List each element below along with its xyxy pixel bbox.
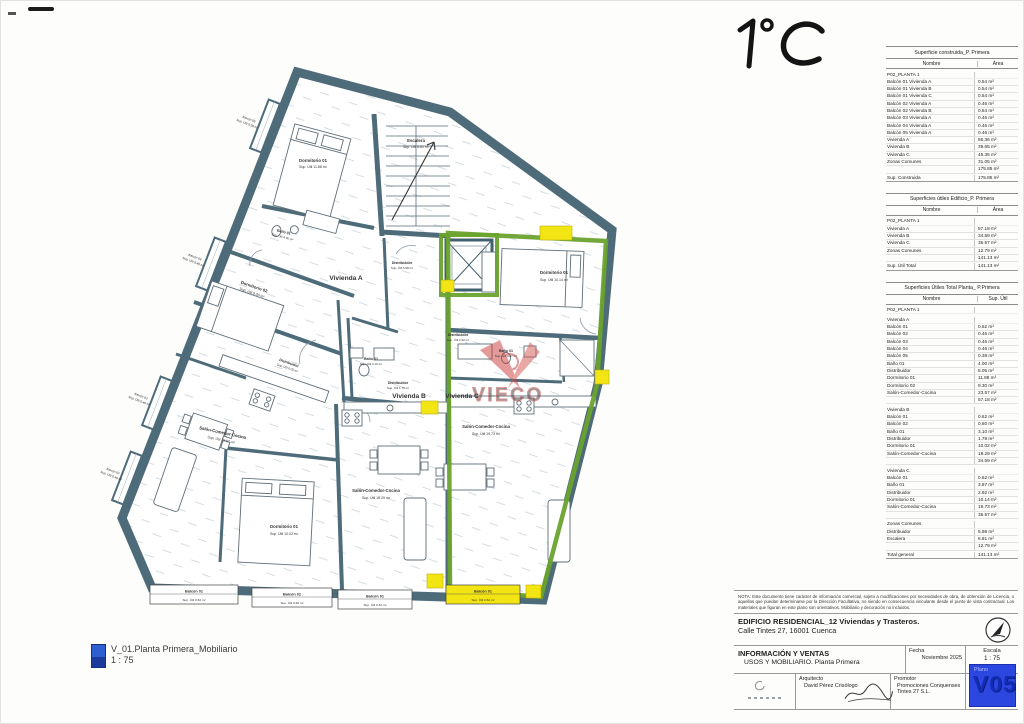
- row-name: Balcón 01: [886, 475, 974, 481]
- row-value: [974, 307, 1018, 313]
- table-row: Baño 01 4.00 m²: [886, 361, 1018, 368]
- table-rows: P02_PLANTA 1 Vivienda A 57.18 m² Viviend…: [886, 218, 1018, 270]
- table-row: P02_PLANTA 1: [886, 307, 1018, 314]
- row-value: 0.62 m²: [974, 324, 1018, 330]
- row-name: Dormitorio 01: [886, 443, 974, 449]
- table-row: Balcón 02 0.46 m²: [886, 331, 1018, 338]
- fecha-value: Noviembre 2025: [909, 655, 962, 662]
- scan-artifact: [8, 12, 16, 15]
- table-row: Vivienda B: [886, 407, 1018, 414]
- table-row: Balcón 01 0.62 m²: [886, 324, 1018, 331]
- sofa-icon: [404, 498, 426, 560]
- compass-logo-icon: [984, 616, 1012, 644]
- sink-icon: [552, 399, 558, 405]
- row-name: P02_PLANTA 1: [886, 218, 974, 224]
- escala-value: 1 : 75: [969, 655, 1015, 662]
- table-row: Vivienda A: [886, 317, 1018, 324]
- row-name: Balcón 01 Vivienda A: [886, 79, 974, 85]
- row-value: 0.62 m²: [974, 475, 1018, 481]
- row-value: [974, 218, 1018, 224]
- row-name: Sup. Útil Total: [886, 263, 974, 269]
- handwritten-annotation: [722, 14, 842, 76]
- row-name: Balcón 02 Vivienda A: [886, 101, 974, 107]
- row-value: 0.46 m²: [974, 331, 1018, 337]
- row-name: Vivienda A: [886, 226, 974, 232]
- row-value: 34.59 m²: [974, 458, 1018, 464]
- table-row: Balcón 01 Vivienda C 0.54 m²: [886, 93, 1018, 100]
- row-value: 57.18 m²: [974, 397, 1018, 403]
- plano-number: V05: [973, 673, 1015, 695]
- room-area: Sup. Útil 19.73 m²: [472, 432, 501, 436]
- row-name: [886, 512, 974, 518]
- vivienda-c-label: Vivienda C: [445, 393, 479, 400]
- row-name: Balcón 02 Vivienda B: [886, 108, 974, 114]
- row-name: Total general: [886, 552, 974, 558]
- row-value: 34.59 m²: [974, 233, 1018, 239]
- project-address: Calle Tintes 27, 16001 Cuenca: [738, 626, 1018, 635]
- table-row: Sup. Construida 175.85 m²: [886, 175, 1018, 181]
- table-title: Superficies útiles Edificio_P. Primera: [886, 193, 1018, 206]
- balcony-area: Sup. Útil 0.62 m²: [471, 598, 494, 602]
- table-row: Zonas Comunes: [886, 521, 1018, 528]
- legend-title: V_01.Planta Primera_Mobiliario: [111, 644, 238, 655]
- table-row: Vivienda C 45.35 m²: [886, 152, 1018, 159]
- document-title: INFORMACIÓN Y VENTAS: [738, 649, 905, 658]
- row-value: 57.18 m²: [974, 226, 1018, 232]
- row-value: 18.29 m²: [974, 451, 1018, 457]
- table-title: Superficies Útiles Total Planta_ P.Prime…: [886, 282, 1018, 295]
- row-name: Distribuidor: [886, 529, 974, 535]
- column-header: Nombre: [886, 61, 977, 67]
- row-name: Dormitorio 01: [886, 497, 974, 503]
- row-value: [974, 317, 1018, 323]
- row-value: 56.36 m²: [974, 137, 1018, 143]
- row-value: 0.46 m²: [974, 115, 1018, 121]
- table-row: Dormitorio 01 11.88 m²: [886, 375, 1018, 382]
- table-row: Dormitorio 01 10.14 m²: [886, 497, 1018, 504]
- table-header: Nombre Sup. Útil: [886, 295, 1018, 305]
- row-value: 0.46 m²: [974, 130, 1018, 136]
- row-value: 5.98 m²: [974, 529, 1018, 535]
- table-row: Balcón 01 Vivienda B 0.54 m²: [886, 86, 1018, 93]
- table-header: Nombre Área: [886, 206, 1018, 216]
- room-area: Sup. Útil 11.88 m²: [299, 165, 328, 169]
- balcony-label: Balcón 01: [366, 595, 384, 599]
- table-row: Zonas Comunes 12.79 m²: [886, 248, 1018, 255]
- row-name: Balcón 02: [886, 331, 974, 337]
- promotor-name: Promociones Conquenses Tintes 27 S.L.: [894, 683, 962, 696]
- sink-icon: [387, 405, 393, 411]
- table-row: Balcón 03 0.46 m²: [886, 339, 1018, 346]
- row-value: 0.46 m²: [974, 346, 1018, 352]
- table-row: Zonas Comunes 31.05 m²: [886, 159, 1018, 166]
- row-value: 45.35 m²: [974, 152, 1018, 158]
- table-superficie-construida: Superficie construida_P. Primera Nombre …: [886, 46, 1018, 182]
- table-row: Vivienda B 39.65 m²: [886, 144, 1018, 151]
- studio-logo-cell: [734, 674, 795, 709]
- row-name: Distribuidor: [886, 436, 974, 442]
- floor-plan: VIECO Dormitorio 01 Sup. Útil 11.88 m² E…: [85, 55, 630, 625]
- table-row: Balcón 02 0.60 m²: [886, 421, 1018, 428]
- row-name: Zonas Comunes: [886, 248, 974, 254]
- room-area: Sup. Útil 5.98 m²: [391, 265, 413, 270]
- room-label: Dormitorio 01: [299, 158, 328, 163]
- room-label: Escalera: [407, 138, 425, 143]
- row-name: Salón-Comedor-Cocina: [886, 504, 974, 510]
- dining-table-icon: [436, 464, 494, 490]
- table-row: Sup. Útil Total 141.13 m²: [886, 263, 1018, 269]
- row-value: 10.02 m²: [974, 443, 1018, 449]
- title-block: NOTA: Este documento tiene carácter de i…: [734, 590, 1018, 710]
- scanned-plan-sheet: VIECO Dormitorio 01 Sup. Útil 11.88 m² E…: [0, 0, 1024, 724]
- plano-cell: Plano V05: [965, 674, 1018, 709]
- room-area: Sup. Útil 3.10 m²: [360, 361, 382, 366]
- balcony-area: Sup. Útil 0.62 m²: [182, 598, 205, 602]
- table-row: 36.57 m²: [886, 512, 1018, 519]
- plano-number-box: Plano V05: [969, 664, 1016, 707]
- row-name: Vivienda B: [886, 407, 974, 413]
- table-rows: P02_PLANTA 1 Vivienda A Balcón 01 0.62 m…: [886, 307, 1018, 559]
- row-name: Balcón 05: [886, 353, 974, 359]
- row-value: 0.60 m²: [974, 421, 1018, 427]
- table-row: Vivienda A 57.18 m²: [886, 226, 1018, 233]
- row-name: Salón-Comedor-Cocina: [886, 390, 974, 396]
- fecha-label: Fecha: [909, 648, 962, 654]
- room-label: Baño 01: [499, 349, 513, 353]
- area-tables-panel: Superficie construida_P. Primera Nombre …: [886, 46, 1018, 570]
- table-row: Balcón 01 0.62 m²: [886, 414, 1018, 421]
- row-value: 0.46 m²: [974, 123, 1018, 129]
- row-value: [974, 521, 1018, 527]
- table-row: Balcón 01 Vivienda A 0.54 m²: [886, 79, 1018, 86]
- row-value: 2.92 m²: [974, 490, 1018, 496]
- row-name: Balcón 03: [886, 339, 974, 345]
- table-row: 34.59 m²: [886, 458, 1018, 465]
- row-name: Balcón 04 Vivienda A: [886, 123, 974, 129]
- row-value: 9.30 m²: [974, 383, 1018, 389]
- room-label: Dormitorio 01: [270, 524, 299, 529]
- handwriting-1c-icon: [722, 14, 842, 76]
- room-label: Salón-Comedor-Cocina: [352, 488, 400, 493]
- document-subtitle: USOS Y MOBILIARIO. Planta Primera: [738, 658, 905, 667]
- signature-row: Arquitecto David Pérez Crisólogo Promoto…: [734, 674, 1018, 710]
- row-value: 10.14 m²: [974, 497, 1018, 503]
- room-label: Distribuidor: [448, 333, 469, 337]
- row-name: P02_PLANTA 1: [886, 72, 974, 78]
- column-header: Área: [977, 61, 1018, 67]
- row-value: 0.62 m²: [974, 414, 1018, 420]
- balcony-label: Balcón 01: [474, 590, 492, 594]
- row-value: 19.73 m²: [974, 504, 1018, 510]
- dining-table-icon: [370, 446, 428, 474]
- legend-color-swatch: [91, 644, 106, 668]
- legend-text: V_01.Planta Primera_Mobiliario 1 : 75: [111, 644, 238, 668]
- balcony-label: Balcón 01: [185, 590, 203, 594]
- vivienda-b-label: Vivienda B: [392, 393, 426, 400]
- table-row: Distribuidor 6.05 m²: [886, 368, 1018, 375]
- legend-scale: 1 : 75: [111, 655, 238, 666]
- scan-artifact: [28, 7, 54, 11]
- row-name: Vivienda A: [886, 317, 974, 323]
- document-title-cell: INFORMACIÓN Y VENTAS USOS Y MOBILIARIO. …: [734, 646, 905, 673]
- table-row: Balcón 03 Vivienda A 0.46 m²: [886, 115, 1018, 122]
- row-value: 0.46 m²: [974, 339, 1018, 345]
- row-value: 141.13 m²: [974, 263, 1018, 269]
- row-name: Dormitorio 02: [886, 383, 974, 389]
- row-value: 0.54 m²: [974, 93, 1018, 99]
- row-value: 11.88 m²: [974, 375, 1018, 381]
- row-name: Vivienda B: [886, 233, 974, 239]
- row-name: Balcón 01 Vivienda B: [886, 86, 974, 92]
- row-value: [974, 468, 1018, 474]
- room-area: Sup. Útil 6.81 m²: [403, 145, 430, 149]
- row-name: Zonas Comunes: [886, 159, 974, 165]
- row-name: Balcón 01: [886, 414, 974, 420]
- row-value: 39.65 m²: [974, 144, 1018, 150]
- row-name: P02_PLANTA 1: [886, 307, 974, 313]
- table-row: P02_PLANTA 1: [886, 72, 1018, 79]
- row-value: 175.85 m²: [974, 166, 1018, 172]
- room-area: Sup. Útil 10.14 m²: [540, 278, 569, 282]
- row-value: 0.64 m²: [974, 108, 1018, 114]
- table-row: Baño 01 3.87 m²: [886, 482, 1018, 489]
- room-area: Sup. Útil 18.29 m²: [362, 496, 391, 500]
- row-value: 23.57 m²: [974, 390, 1018, 396]
- room-label: Salón-Comedor-Cocina: [462, 424, 510, 429]
- row-name: Dormitorio 01: [886, 375, 974, 381]
- row-name: Escalera: [886, 536, 974, 542]
- row-value: 12.79 m²: [974, 543, 1018, 549]
- table-row: Balcón 01 0.62 m²: [886, 475, 1018, 482]
- row-value: [974, 407, 1018, 413]
- fecha-cell: Fecha Noviembre 2025: [905, 646, 965, 673]
- table-row: Escalera 6.81 m²: [886, 536, 1018, 543]
- row-name: Balcón 05 Vivienda A: [886, 130, 974, 136]
- column-header: Nombre: [886, 296, 977, 302]
- balcony-area: Sup. Útil 0.62 m²: [363, 603, 386, 607]
- project-name: EDIFICIO RESIDENCIAL_12 Viviendas y Tras…: [738, 617, 1018, 626]
- row-value: 0.38 m²: [974, 353, 1018, 359]
- watermark-text: VIECO: [472, 385, 544, 406]
- row-name: [886, 458, 974, 464]
- table-row: Vivienda A 56.36 m²: [886, 137, 1018, 144]
- table-row: Balcón 04 0.46 m²: [886, 346, 1018, 353]
- room-area: Sup. Útil 10.02 m²: [270, 532, 299, 536]
- table-row: Balcón 02 Vivienda A 0.46 m²: [886, 101, 1018, 108]
- table-row: Balcón 02 Vivienda B 0.64 m²: [886, 108, 1018, 115]
- row-value: 141.13 m²: [974, 552, 1018, 558]
- row-value: 175.85 m²: [974, 175, 1018, 181]
- row-value: 141.13 m²: [974, 255, 1018, 261]
- row-name: Balcón 03 Vivienda A: [886, 115, 974, 121]
- table-row: Vivienda C 36.57 m²: [886, 240, 1018, 247]
- row-value: 31.05 m²: [974, 159, 1018, 165]
- row-name: Balcón 04: [886, 346, 974, 352]
- column-header: Nombre: [886, 207, 977, 213]
- table-row: Vivienda B 34.59 m²: [886, 233, 1018, 240]
- plan-legend: V_01.Planta Primera_Mobiliario 1 : 75: [91, 644, 238, 668]
- room-label: Distribuidor: [388, 381, 409, 385]
- row-name: Salón-Comedor-Cocina: [886, 451, 974, 457]
- row-name: Baño 01: [886, 482, 974, 488]
- table-row: Vivienda C: [886, 468, 1018, 475]
- row-name: Sup. Construida: [886, 175, 974, 181]
- nota-disclaimer: NOTA: Este documento tiene carácter de i…: [734, 590, 1018, 614]
- row-value: 4.00 m²: [974, 361, 1018, 367]
- table-header: Nombre Área: [886, 59, 1018, 69]
- row-name: Vivienda B: [886, 144, 974, 150]
- column-header: Área: [977, 207, 1018, 213]
- row-name: [886, 543, 974, 549]
- row-name: Vivienda C: [886, 240, 974, 246]
- row-name: Distribuidor: [886, 368, 974, 374]
- table-rows: P02_PLANTA 1 Balcón 01 Vivienda A 0.54 m…: [886, 72, 1018, 182]
- table-row: Balcón 05 Vivienda A 0.46 m²: [886, 130, 1018, 137]
- project-row: EDIFICIO RESIDENCIAL_12 Viviendas y Tras…: [734, 614, 1018, 646]
- row-value: 36.57 m²: [974, 240, 1018, 246]
- room-label: Baño 01: [364, 357, 378, 361]
- column-header: Sup. Útil: [977, 296, 1018, 302]
- table-row: Salón-Comedor-Cocina 18.29 m²: [886, 451, 1018, 458]
- promotor-cell: Promotor Promociones Conquenses Tintes 2…: [890, 674, 965, 709]
- row-value: 36.57 m²: [974, 512, 1018, 518]
- table-row: Salón-Comedor-Cocina 19.73 m²: [886, 504, 1018, 511]
- row-name: Balcón 01: [886, 324, 974, 330]
- balcony-label: Balcón 02: [283, 593, 301, 597]
- room-area: Sup. Útil 3.87 m²: [495, 353, 517, 358]
- table-row: Total general 141.13 m²: [886, 552, 1018, 558]
- row-name: [886, 397, 974, 403]
- row-value: 0.46 m²: [974, 101, 1018, 107]
- table-row: Distribuidor 5.98 m²: [886, 529, 1018, 536]
- table-row: P02_PLANTA 1: [886, 218, 1018, 225]
- table-title: Superficie construida_P. Primera: [886, 46, 1018, 59]
- row-value: 1.78 m²: [974, 436, 1018, 442]
- room-area: Sup. Útil 2.92 m²: [447, 337, 469, 342]
- vivienda-a-label: Vivienda A: [329, 275, 363, 282]
- row-value: 6.81 m²: [974, 536, 1018, 542]
- table-superficies-utiles-total: Superficies Útiles Total Planta_ P.Prime…: [886, 282, 1018, 559]
- row-name: Baño 01: [886, 429, 974, 435]
- table-row: 141.13 m²: [886, 255, 1018, 262]
- row-name: [886, 255, 974, 261]
- row-name: [886, 166, 974, 172]
- cooktop-icon: [342, 410, 362, 426]
- balcony-area: Sup. Útil 0.60 m²: [280, 601, 303, 605]
- row-value: [974, 72, 1018, 78]
- studio-logo-icon: [744, 678, 786, 706]
- row-value: 0.54 m²: [974, 79, 1018, 85]
- room-label: Dormitorio 01: [540, 270, 569, 275]
- signature-icon: [842, 682, 894, 708]
- table-superficies-utiles-edificio: Superficies útiles Edificio_P. Primera N…: [886, 193, 1018, 271]
- row-name: Vivienda A: [886, 137, 974, 143]
- table-row: Distribuidor 1.78 m²: [886, 436, 1018, 443]
- row-value: 6.05 m²: [974, 368, 1018, 374]
- table-row: Baño 01 3.10 m²: [886, 429, 1018, 436]
- table-row: Balcón 04 Vivienda A 0.46 m²: [886, 123, 1018, 130]
- row-name: Balcón 02: [886, 421, 974, 427]
- table-row: 12.79 m²: [886, 543, 1018, 550]
- table-row: 57.18 m²: [886, 397, 1018, 404]
- row-name: Vivienda C: [886, 152, 974, 158]
- wardrobe-icon: [482, 252, 496, 292]
- table-row: Dormitorio 01 10.02 m²: [886, 443, 1018, 450]
- table-row: Balcón 05 0.38 m²: [886, 353, 1018, 360]
- row-name: Distribuidor: [886, 490, 974, 496]
- room-label: Distribuidor: [392, 261, 413, 265]
- arquitecto-cell: Arquitecto David Pérez Crisólogo: [795, 674, 890, 709]
- row-name: Baño 01: [886, 361, 974, 367]
- table-row: Distribuidor 2.92 m²: [886, 490, 1018, 497]
- table-row: 175.85 m²: [886, 166, 1018, 173]
- row-name: Balcón 01 Vivienda C: [886, 93, 974, 99]
- escala-label: Escala: [969, 648, 1015, 654]
- row-value: 12.79 m²: [974, 248, 1018, 254]
- row-value: 0.54 m²: [974, 86, 1018, 92]
- row-name: Vivienda C: [886, 468, 974, 474]
- room-area: Sup. Útil 1.78 m²: [387, 385, 409, 390]
- bed-icon: [238, 478, 314, 566]
- row-value: 3.10 m²: [974, 429, 1018, 435]
- table-row: Dormitorio 02 9.30 m²: [886, 383, 1018, 390]
- row-name: Zonas Comunes: [886, 521, 974, 527]
- table-row: Salón-Comedor-Cocina 23.57 m²: [886, 390, 1018, 397]
- row-value: 3.87 m²: [974, 482, 1018, 488]
